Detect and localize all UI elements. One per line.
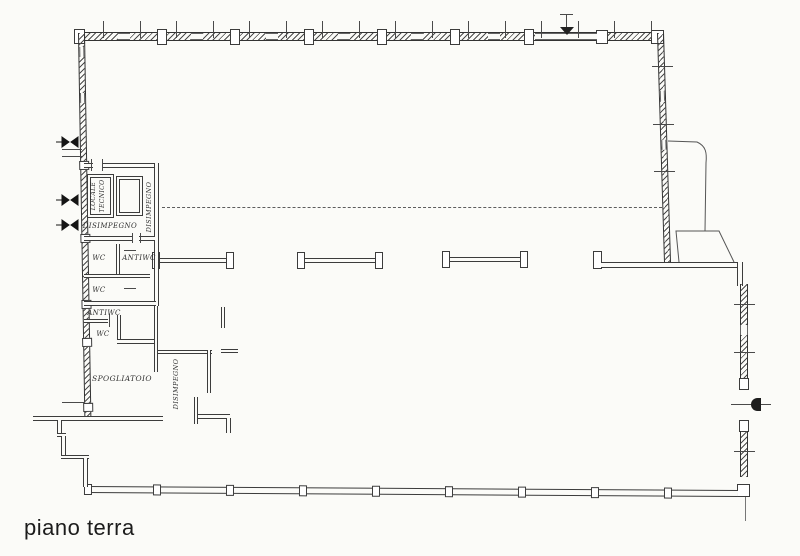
external-stair-outline [660, 130, 750, 270]
partition-sill-3 [450, 257, 522, 262]
facade-tick [651, 21, 652, 38]
door-jamb [102, 159, 103, 171]
wall-tick [654, 171, 675, 172]
pilaster [591, 487, 599, 498]
benchmark-triangle-icon [560, 27, 574, 35]
window-opening [660, 91, 665, 101]
wall-post [82, 338, 92, 347]
facade-tick [176, 21, 177, 38]
antiwc-stub-wall [84, 319, 108, 323]
facade-tick [140, 21, 141, 38]
cluster-main-wall [154, 163, 159, 306]
facade-tick [541, 21, 542, 38]
wall-tick [734, 304, 755, 305]
window-opening [118, 33, 130, 40]
pilaster [445, 486, 453, 497]
pilaster [524, 29, 534, 45]
southwest-wall-a [33, 416, 163, 421]
hall-dashed-line [162, 207, 662, 208]
window-opening [79, 47, 84, 57]
wall-post [83, 403, 93, 412]
wall-tick [653, 124, 674, 125]
door-leaf-mark [124, 250, 136, 251]
pilaster [518, 487, 526, 498]
partition-post [226, 252, 234, 269]
facade-tick [505, 21, 506, 38]
room-label-disimpegno-corridor: DISIMPEGNO [171, 354, 181, 414]
facade-tick [468, 21, 469, 38]
top-wall [78, 32, 662, 41]
door-leaf-mark [124, 288, 136, 289]
pilaster [664, 488, 672, 499]
section-arrow-icon [56, 194, 80, 206]
right-wall-lower-b [740, 431, 748, 477]
corridor-wall-4 [194, 397, 198, 424]
door-jamb [91, 159, 92, 171]
window-opening [80, 93, 85, 103]
window-opening [191, 33, 203, 40]
partition-sill-1 [160, 258, 228, 263]
plan-title: piano terra [24, 515, 135, 541]
window-opening [411, 33, 423, 40]
partition-post [520, 251, 528, 268]
partition-sill-2 [305, 258, 377, 263]
room-label-antiwc-top: ANTIWC [119, 253, 159, 263]
corridor-wall-1 [154, 306, 158, 372]
section-arrow-icon [56, 136, 80, 148]
wall-tick [734, 451, 755, 452]
bottom-wall [87, 486, 738, 497]
pilaster [304, 29, 314, 45]
facade-tick [249, 21, 250, 38]
facade-tick [395, 21, 396, 38]
entrance-door-icon [751, 398, 761, 411]
room-label-locale-tecnico: LOCALE TECNICO [89, 176, 111, 216]
pilaster-t [596, 30, 608, 44]
facade-tick [322, 21, 323, 38]
facade-tick [359, 21, 360, 38]
partition-post [442, 251, 450, 268]
boundary-line [745, 497, 746, 521]
facade-tick [432, 21, 433, 38]
pilaster [153, 484, 161, 495]
room-label-disimpegno-upper: DISIMPEGNO [144, 177, 154, 237]
floor-plan-drawing: LOCALE TECNICO DISIMPEGNO DISIMPEGNO WC … [0, 0, 800, 556]
room-label-wc-top: WC [84, 253, 114, 263]
partition-post [297, 252, 305, 269]
door-jamb [132, 233, 133, 243]
room-label-disimpegno-entry: DISIMPEGNO [75, 221, 145, 231]
cluster-wall-2a [84, 236, 132, 241]
corner-post-bottom-right [737, 484, 750, 497]
facade-tick [578, 21, 579, 38]
step-wall-5 [83, 458, 88, 487]
window-opening [266, 33, 278, 40]
hall-opening-wall-h [221, 349, 238, 353]
room-label-antiwc-lower: ANTIWC [84, 308, 124, 318]
wall-tick [62, 149, 82, 150]
wc-partition-horizontal [84, 274, 150, 278]
pilaster [450, 29, 460, 45]
facade-tick [213, 21, 214, 38]
pilaster [157, 29, 167, 45]
pilaster [372, 486, 380, 497]
door-jamb [140, 233, 141, 243]
wc-lower-wall-h [117, 339, 158, 344]
room-label-wc-lower: WC [88, 329, 118, 339]
equipment-box [116, 176, 143, 216]
window-opening [740, 325, 748, 335]
hall-opening-wall-v [221, 307, 225, 328]
equipment-box-inner-line [119, 179, 140, 213]
wall-tick [734, 352, 755, 353]
southwest-wall-stub [226, 418, 231, 433]
room-label-wc-middle: WC [84, 285, 114, 295]
cluster-bottom-wall [84, 301, 156, 306]
floor-plan-sheet: LOCALE TECNICO DISIMPEGNO DISIMPEGNO WC … [0, 0, 800, 556]
facade-tick [614, 21, 615, 38]
partition-post [375, 252, 383, 269]
window-opening [488, 33, 500, 40]
door-jamb-post [739, 378, 749, 390]
wall-tick [62, 156, 82, 157]
wall-tick [62, 402, 84, 403]
room-label-spogliatoio: SPOGLIATOIO [77, 374, 167, 384]
facade-tick [103, 21, 104, 38]
corridor-wall-3 [207, 350, 211, 393]
pilaster [226, 485, 234, 496]
window-opening [338, 33, 350, 40]
facade-tick [286, 21, 287, 38]
cluster-top-wall-b [103, 163, 157, 168]
pilaster [299, 485, 307, 496]
corridor-wall-2 [158, 350, 212, 354]
pilaster [377, 29, 387, 45]
pilaster [230, 29, 240, 45]
wall-tick [652, 66, 673, 67]
